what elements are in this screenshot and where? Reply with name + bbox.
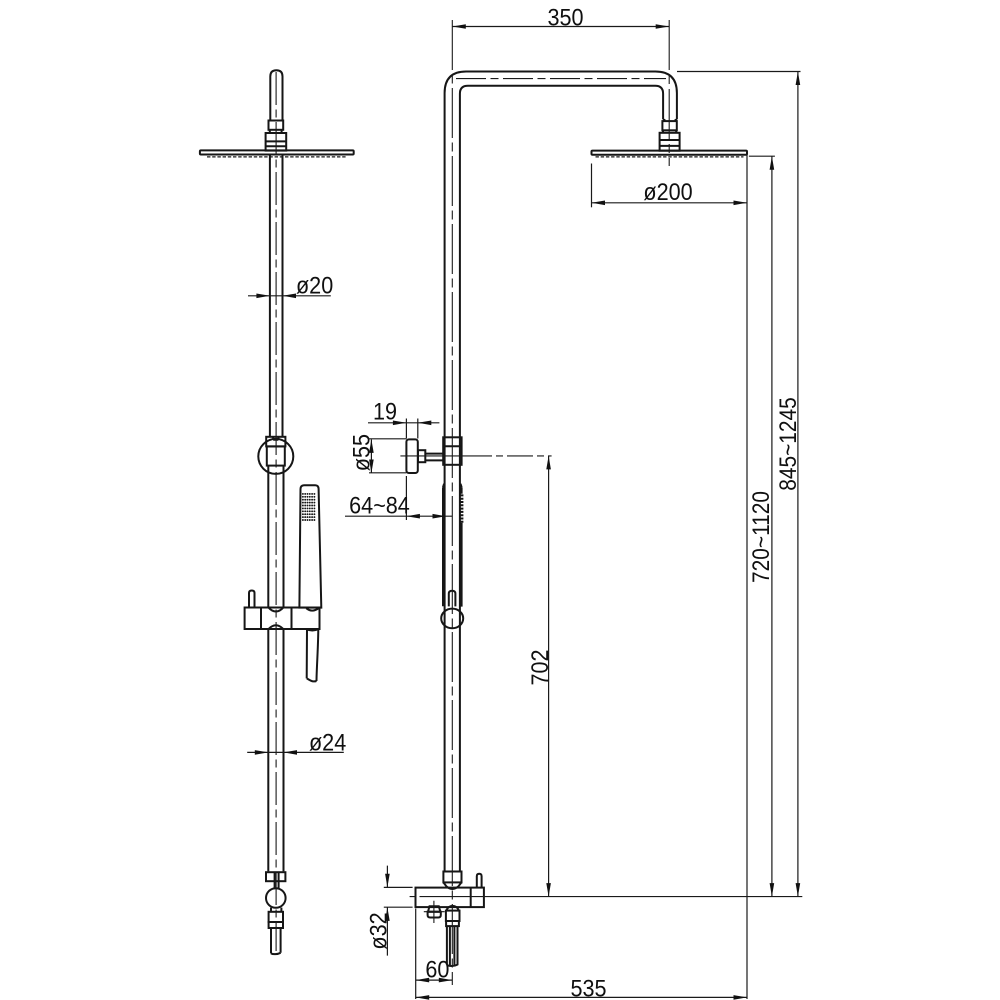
svg-text:350: 350 [547, 3, 583, 30]
svg-text:ø32: ø32 [364, 912, 391, 949]
svg-text:845~1245: 845~1245 [775, 397, 802, 490]
svg-text:ø24: ø24 [309, 728, 347, 755]
svg-text:720~1120: 720~1120 [748, 491, 775, 583]
svg-text:702: 702 [526, 649, 553, 685]
svg-text:19: 19 [373, 397, 397, 424]
svg-text:60: 60 [425, 955, 449, 982]
svg-text:64~84: 64~84 [349, 491, 410, 518]
svg-text:535: 535 [570, 974, 606, 1000]
svg-text:ø200: ø200 [643, 178, 692, 205]
svg-text:ø55: ø55 [347, 434, 374, 471]
svg-text:ø20: ø20 [296, 271, 333, 298]
